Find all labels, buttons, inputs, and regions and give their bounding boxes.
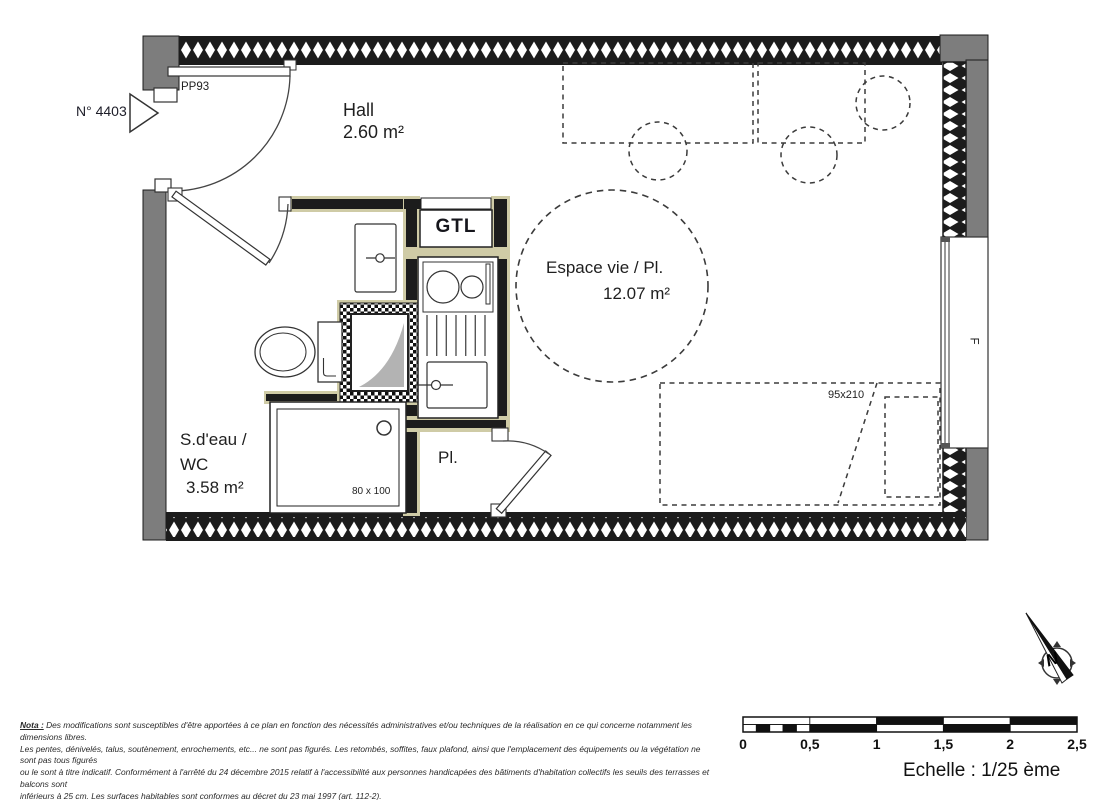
floor-plan-drawing bbox=[0, 0, 1108, 800]
room-label-bathroom-2: WC bbox=[180, 455, 208, 475]
right-wall-insulation-lower bbox=[943, 447, 966, 517]
compass-tick-n bbox=[1053, 641, 1061, 647]
closet-door-jamb-top bbox=[492, 428, 508, 441]
nota-line-4: inférieurs à 25 cm. Les surfaces habitab… bbox=[20, 791, 715, 800]
scale-tick-2: 2 bbox=[1006, 736, 1014, 752]
technical-shaft bbox=[337, 300, 422, 405]
left-exterior-wall bbox=[143, 190, 166, 540]
window-label: F bbox=[968, 337, 980, 344]
chair-outline bbox=[629, 122, 687, 180]
bathroom-door bbox=[168, 188, 291, 265]
closet-door bbox=[491, 428, 551, 517]
kitchen-bottom-wall bbox=[406, 420, 506, 428]
scale-bar bbox=[743, 717, 1077, 732]
scale-caption: Echelle : 1/25 ème bbox=[903, 760, 1060, 782]
scale-tick-15: 1,5 bbox=[934, 736, 953, 752]
closet-door-swing-arc bbox=[503, 441, 549, 454]
sink-faucet bbox=[432, 381, 441, 390]
entry-door-jamb-top bbox=[154, 88, 177, 102]
floor-plan-page: N° 4403 PP93 Hall 2.60 m² Espace vie / P… bbox=[0, 0, 1108, 800]
nota-label: Nota : bbox=[20, 720, 44, 730]
top-wall-insulation bbox=[176, 40, 942, 60]
shower-dimension-label: 80 x 100 bbox=[352, 486, 390, 497]
shower-drain bbox=[377, 421, 391, 435]
chair-outline bbox=[856, 76, 910, 130]
compass-tick-s bbox=[1053, 679, 1061, 685]
scale-tick-05: 0,5 bbox=[800, 736, 819, 752]
entry-door-leaf bbox=[168, 67, 290, 76]
compass-tick-w bbox=[1038, 659, 1044, 667]
furniture-dashed bbox=[516, 63, 940, 505]
entry-door-label: PP93 bbox=[181, 81, 209, 93]
bed-outline bbox=[660, 383, 940, 505]
window-end-cap bbox=[941, 237, 950, 242]
nota-line-2: Les pentes, dénivelés, talus, soutènemen… bbox=[20, 744, 715, 768]
table-outline bbox=[563, 63, 753, 143]
gtl-top-stub-left bbox=[404, 199, 422, 209]
scale-tick-1: 1 bbox=[873, 736, 881, 752]
window-end-cap bbox=[941, 443, 950, 448]
unit-number-label: N° 4403 bbox=[76, 103, 127, 119]
wall-block-top-right bbox=[940, 35, 988, 62]
room-label-living: Espace vie / Pl. bbox=[546, 258, 663, 278]
window-f bbox=[941, 237, 988, 448]
table-outline-2 bbox=[758, 63, 865, 143]
entry-door-swing-arc bbox=[172, 76, 290, 191]
bed-diagonal-line bbox=[838, 383, 877, 503]
bathroom-north-wall bbox=[292, 199, 404, 209]
nota-line-1-text: Des modifications sont susceptibles d'êt… bbox=[20, 720, 692, 742]
room-area-hall: 2.60 m² bbox=[343, 122, 404, 143]
gtl-front-opening bbox=[421, 198, 491, 209]
closet-door-leaf bbox=[496, 451, 551, 513]
kitchenette bbox=[415, 210, 498, 418]
room-label-bathroom-1: S.d'eau / bbox=[180, 430, 247, 450]
nota-block: Nota : Des modifications sont susceptibl… bbox=[20, 720, 715, 800]
toilet-cistern bbox=[318, 322, 342, 382]
room-label-hall: Hall bbox=[343, 100, 374, 121]
washbasin-faucet bbox=[376, 254, 384, 262]
window-frame bbox=[941, 237, 988, 448]
chair-outline bbox=[781, 127, 837, 183]
bed-dimension-label: 95x210 bbox=[828, 389, 864, 401]
bathroom-door-swing-arc bbox=[269, 204, 288, 263]
cooktop-control-strip bbox=[486, 264, 490, 304]
gtl-label: GTL bbox=[420, 216, 492, 238]
room-area-bathroom: 3.58 m² bbox=[186, 478, 244, 498]
bottom-wall-outer-line bbox=[166, 537, 966, 541]
nota-line-3: ou le sont à titre indicatif. Conforméme… bbox=[20, 767, 715, 791]
bedside-outline bbox=[885, 397, 938, 497]
room-label-closet: Pl. bbox=[438, 448, 458, 468]
scale-tick-25: 2,5 bbox=[1067, 736, 1086, 752]
top-wall-outer-line bbox=[176, 36, 942, 40]
nota-line-1: Nota : Des modifications sont susceptibl… bbox=[20, 720, 715, 744]
scale-tick-0: 0 bbox=[739, 736, 747, 752]
bathroom-door-jamb-right bbox=[279, 197, 291, 211]
bottom-wall-insulation bbox=[166, 517, 966, 537]
bathroom-door-leaf bbox=[172, 191, 270, 265]
compass-tick-e bbox=[1070, 659, 1076, 667]
room-area-living: 12.07 m² bbox=[603, 284, 670, 304]
right-wall-insulation-upper bbox=[943, 62, 966, 238]
shower-north-wall bbox=[266, 394, 343, 401]
wall-block-top-left bbox=[143, 36, 179, 90]
